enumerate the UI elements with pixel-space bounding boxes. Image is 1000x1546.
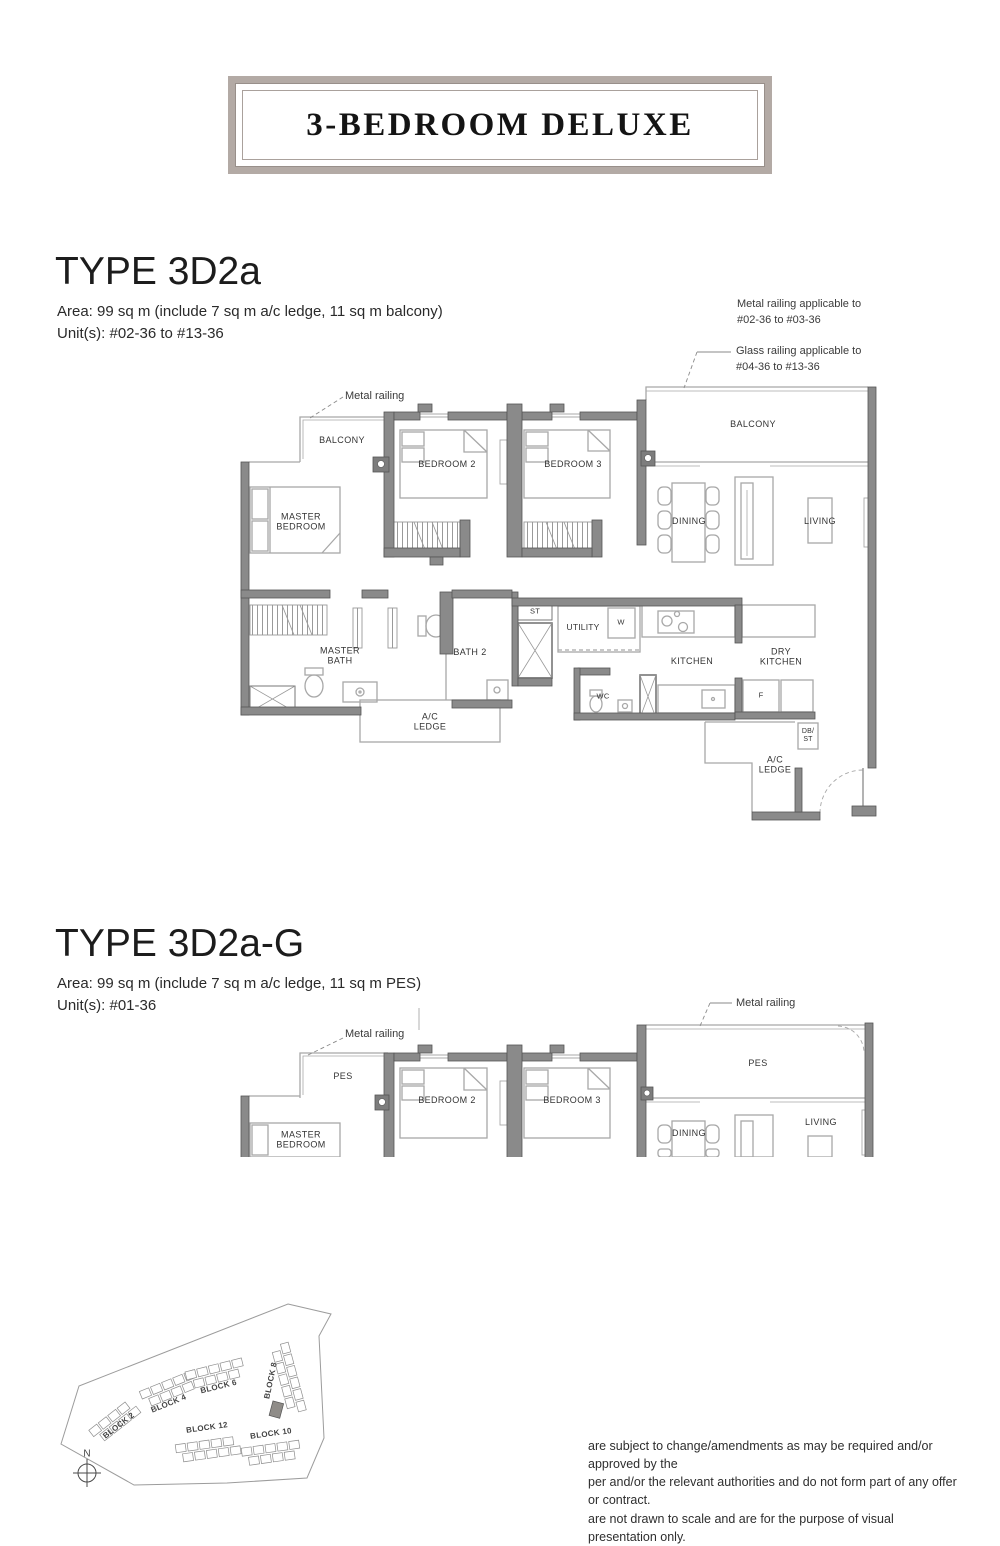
- ac-ledge-label: A/C LEDGE: [408, 712, 452, 733]
- compass-north-label: N: [83, 1449, 90, 1460]
- room-label-dining-2: DINING: [672, 1128, 706, 1138]
- plan1-glass-range-annotation-line2: #04-36 to #13-36: [736, 360, 820, 374]
- disclaimer-line-1: are subject to change/amendments as may …: [588, 1437, 958, 1473]
- room-label-balcony-right: BALCONY: [730, 419, 776, 429]
- disclaimer-line-3: are not drawn to scale and are for the p…: [588, 1510, 958, 1546]
- room-label-master-bedroom: MASTER BEDROOM: [268, 512, 334, 533]
- washer-label: W: [617, 619, 624, 628]
- room-label-living-2: LIVING: [805, 1117, 837, 1127]
- title-banner: 3-BEDROOM DELUXE: [228, 76, 772, 174]
- room-label-wc: WC: [597, 693, 610, 702]
- room-label-pes-left: PES: [333, 1071, 352, 1081]
- plan2-metal-railing-right-annotation: Metal railing: [736, 996, 795, 1010]
- room-label-dining: DINING: [672, 516, 706, 526]
- room-label-bath2: BATH 2: [453, 647, 486, 657]
- plan1-metal-range-annotation-line1: Metal railing applicable to: [737, 297, 861, 311]
- room-label-kitchen: KITCHEN: [671, 656, 713, 666]
- room-label-st: ST: [530, 608, 540, 617]
- compass-icon: [73, 1459, 101, 1487]
- room-label-utility: UTILITY: [566, 623, 599, 633]
- plan1-metal-railing-annotation: Metal railing: [345, 389, 404, 403]
- plan2-area-line: Area: 99 sq m (include 7 sq m a/c ledge,…: [57, 975, 421, 992]
- page-title: 3-BEDROOM DELUXE: [306, 107, 693, 144]
- room-label-master-bedroom-2: MASTER BEDROOM: [268, 1130, 334, 1151]
- room-label-master-bath: MASTER BATH: [314, 646, 366, 667]
- room-label-bedroom3: BEDROOM 3: [544, 459, 602, 469]
- plan1-units-line: Unit(s): #02-36 to #13-36: [57, 325, 224, 342]
- room-label-dry-kitchen: DRY KITCHEN: [757, 647, 805, 668]
- floorplan-drawing: [0, 0, 1000, 1538]
- plan1-area-line: Area: 99 sq m (include 7 sq m a/c ledge,…: [57, 303, 443, 320]
- fridge-label: F: [759, 692, 764, 701]
- db-st-label: DB/ ST: [799, 728, 817, 744]
- disclaimer-line-2: per and/or the relevant authorities and …: [588, 1473, 958, 1509]
- room-label-bedroom3-2: BEDROOM 3: [543, 1095, 601, 1105]
- plan1-title: TYPE 3D2a: [55, 250, 261, 294]
- plan1-linework: [241, 352, 876, 820]
- ac-ledge-2-label: A/C LEDGE: [753, 755, 797, 776]
- disclaimer: are subject to change/amendments as may …: [588, 1437, 958, 1546]
- room-label-pes-right: PES: [748, 1058, 767, 1068]
- highlighted-unit-marker: [269, 1401, 284, 1418]
- plan2-units-line: Unit(s): #01-36: [57, 997, 156, 1014]
- plan1-glass-range-annotation-line1: Glass railing applicable to: [736, 344, 861, 358]
- room-label-balcony-left: BALCONY: [319, 435, 365, 445]
- room-label-bedroom2: BEDROOM 2: [418, 459, 476, 469]
- site-plan-drawing: [61, 1304, 331, 1487]
- plan2-title: TYPE 3D2a-G: [55, 922, 304, 966]
- room-label-living: LIVING: [804, 516, 836, 526]
- room-label-bedroom2-2: BEDROOM 2: [418, 1095, 476, 1105]
- plan2-metal-railing-left-annotation: Metal railing: [345, 1027, 404, 1041]
- plan1-metal-range-annotation-line2: #02-36 to #03-36: [737, 313, 821, 327]
